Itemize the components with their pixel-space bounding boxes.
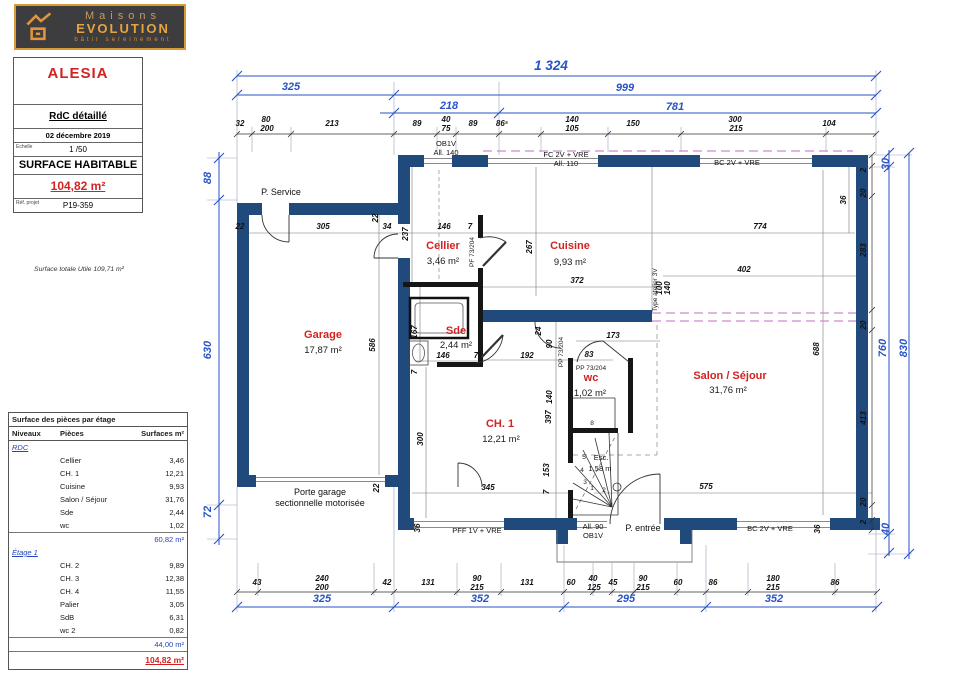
dim-label: 2 [859,167,868,173]
dim-label: 167 [410,325,419,339]
dim-label: 180 [766,574,780,583]
dim-label: 40 [880,522,892,536]
annotation-all90: All. 90 [583,522,604,531]
dim-label: 2 [602,487,606,494]
annotation-porte-service: P. Service [261,187,301,197]
dim-label: 90 [473,574,482,583]
dim-label: 352 [765,593,783,605]
dim-label: 88 [202,171,214,184]
dim-label: 72 [202,506,214,518]
dim-label: 325 [313,593,332,605]
dim-label: 781 [666,101,684,113]
dim-label: 22 [235,222,245,231]
dim-label: 774 [753,222,767,231]
dim-label: 300 [416,432,425,446]
dim-label: 397 [544,410,553,424]
room-label-sde: Sde [446,325,466,337]
dim-label: 22 [371,213,380,223]
dim-label: 325 [282,81,301,93]
dim-label: 173 [606,331,620,340]
dim-label: 8 [590,420,594,427]
dim-label: 36 [839,195,848,204]
dim-label: 215 [765,583,780,592]
dim-label: 20 [859,188,868,198]
dim-label: 105 [565,124,579,133]
dim-label: 125 [587,583,601,592]
dim-label: 345 [481,483,495,492]
room-area-ch1: 12,21 m² [482,434,520,445]
room-area-wc: 1,02 m² [574,388,606,399]
annotation-porte-entree: P. entrée [625,523,660,533]
dim-label: 7 [542,489,551,494]
room-area-sde: 2,44 m² [440,340,472,351]
dim-label: 630 [202,340,214,359]
dim-label: 90 [545,339,554,348]
dim-label: 150 [626,119,640,128]
dim-label: 267 [525,240,534,255]
dim-label: 34 [383,222,392,231]
dim-label: 140 [663,281,672,295]
dim-label: 200 [259,124,274,133]
annotation-fc-window: FC 2V + VRE [543,150,588,159]
dim-label: 40 [588,574,598,583]
annotation-pff-window: PFF 1V + VRE [452,526,501,535]
dim-label: 40 [441,115,451,124]
dim-label: 20 [859,320,868,330]
dim-label: 22 [372,483,381,493]
washbasin [409,341,428,365]
annotation-porte-garage-2: sectionnelle motorisée [275,498,365,508]
dim-label: 60 [674,578,683,587]
dim-label: 140 [545,390,554,404]
dim-label: 2 [859,519,868,525]
dim-label: 153 [542,463,551,477]
dim-label: 7 [468,222,473,231]
dim-label: 86 [831,578,840,587]
dim-label: 45 [608,578,618,587]
dim-label: 283 [859,243,868,258]
dim-label: 83 [585,350,594,359]
dim-label: 192 [520,351,534,360]
dim-label: 32 [236,119,245,128]
room-area-cuisine: 9,93 m² [554,257,586,268]
dim-label: 352 [471,593,489,605]
dim-label: 999 [616,82,635,94]
dim-label: 215 [728,124,743,133]
dim-label: 75 [442,124,451,133]
dim-label: 372 [570,276,584,285]
room-area-cellier: 3,46 m² [427,256,459,267]
annotation-pp-wc: PP 73/204 [576,365,607,372]
room-label-wc: wc [583,372,599,384]
annotation-ob1v-top: OB1V [436,139,456,148]
dim-total-width: 1 324 [534,58,568,73]
dim-label: All. 140 [433,148,458,157]
dim-label: 760 [877,338,889,357]
dim-label: 80 [262,115,271,124]
dim-label: 7 [474,351,479,360]
dim-label: 43 [252,578,262,587]
dim-label: 104 [822,119,836,128]
annotation-pf-cellier: PF 73/204 [469,237,476,267]
door-ch1 [458,463,482,487]
dim-label: 218 [439,100,459,112]
annotation-bc-window-top: BC 2V + VRE [714,158,760,167]
entrance-porch-outline [557,530,692,562]
room-area-salon-sejour: 31,76 m² [709,385,747,396]
dim-label: 575 [699,482,713,491]
dim-label: 7 [410,369,419,374]
dim-label: 5 [582,454,586,461]
dim-label: 146 [436,351,450,360]
dim-label: 240 [314,574,329,583]
dim-label: 140 [565,115,579,124]
room-label-cellier: Cellier [426,240,460,252]
dim-label: 42 [382,578,392,587]
dim-label: 131 [520,578,534,587]
dim-label: 1 [590,485,594,492]
dim-label: 89 [469,119,478,128]
dim-label: 295 [616,593,636,605]
dim-label: 90 [639,574,648,583]
room-label-garage: Garage [304,329,342,341]
annotation-porte-garage-1: Porte garage [294,487,346,497]
door-garage-house [374,234,398,258]
dim-label: 131 [421,578,435,587]
dim-label: 413 [859,411,868,426]
dim-label: 60 [567,578,576,587]
dim-label: 237 [401,227,410,242]
dim-label: 24 [534,326,543,336]
door-cellier-leaf [483,242,506,266]
dim-label: OB1V [583,531,603,540]
door-entree [610,474,660,524]
door-cellier-arc [480,237,506,242]
dim-label: All. 110 [554,159,578,168]
dim-label: 830 [898,338,910,357]
annotation-escalier: Esc. [594,453,609,462]
annotation-pp-hall: PP 73/204 [558,336,565,367]
room-label-salon-sejour: Salon / Séjour [693,370,767,382]
room-area-garage: 17,87 m² [304,345,342,356]
dim-label: 3 [583,479,587,486]
dim-label: 402 [736,265,751,274]
room-label-ch1: CH. 1 [486,418,514,430]
floor-plan-drawing: 1 32432599921878188630723076083040325352… [0,0,960,678]
floor-plan-page: { "colors":{"wall":"#20497c","dim_blue":… [0,0,960,678]
dim-label: 215 [469,583,484,592]
door-p-service [262,215,289,242]
dim-label: 86 [709,578,718,587]
room-label-cuisine: Cuisine [550,240,590,252]
dim-label: 86⁵ [496,119,508,128]
dim-label: 300 [728,115,742,124]
room-boundary-lines [439,167,657,509]
dim-label: 30 [880,157,892,170]
annotation-escalier-dim: 1,58 m [589,464,612,473]
annotation-bc-window-bottom: BC 2V + VRE [747,524,793,533]
annotation-type-atelier: Type atelier 3V [652,268,659,312]
dim-label: 200 [314,583,329,592]
dim-label: 20 [859,497,868,507]
dim-label: 36 [813,524,822,533]
dim-label: 586 [368,338,377,352]
dim-label: 36 [413,523,422,532]
dim-label: 146 [437,222,451,231]
dim-label: 213 [324,119,339,128]
dim-label: 688 [812,342,821,356]
interior-dimension-lines [237,167,872,518]
dim-label: 305 [316,222,330,231]
dim-label: 89 [413,119,422,128]
dim-label: 4 [580,467,584,474]
dim-label: 215 [635,583,650,592]
